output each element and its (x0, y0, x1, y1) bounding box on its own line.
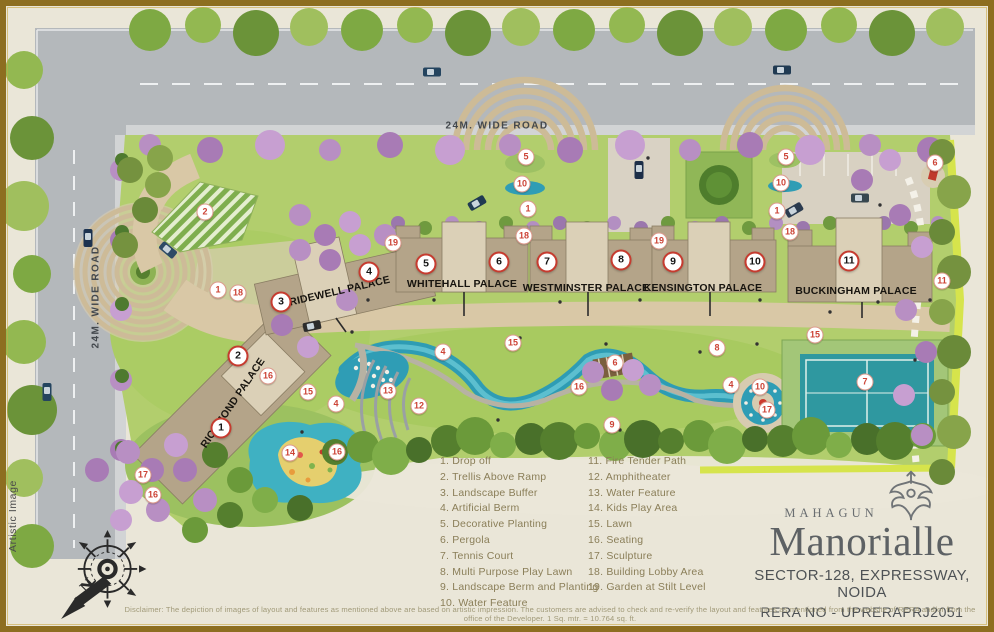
legend-column-2: 11. Fire Tender Path12. Amphitheater13. … (588, 454, 706, 596)
legend-item: 15. Lawn (588, 517, 706, 533)
legend-item: 9. Landscape Berm and Planting (440, 580, 598, 596)
feature-number-badge: 15 (807, 327, 824, 344)
brand-project-name: Manorialle (733, 521, 991, 561)
legend-item: 19. Garden at Stilt Level (588, 580, 706, 596)
tower-number-badge: 5 (416, 254, 437, 275)
feature-number-badge: 14 (282, 445, 299, 462)
tower-number-badge: 3 (271, 292, 292, 313)
tower-number-badge: 1 (211, 418, 232, 439)
tower-number-badge: 11 (839, 251, 860, 272)
feature-number-badge: 15 (505, 335, 522, 352)
brand-crest-icon (883, 470, 939, 522)
legend-column-1: 1. Drop off2. Trellis Above Ramp3. Lands… (440, 454, 598, 612)
tower-number-badge: 6 (489, 252, 510, 273)
tower-number-badge: 8 (611, 250, 632, 271)
legend-item: 8. Multi Purpose Play Lawn (440, 565, 598, 581)
legend-item: 18. Building Lobby Area (588, 565, 706, 581)
feature-number-badge: 16 (329, 444, 346, 461)
feature-number-badge: 1 (210, 282, 227, 299)
feature-number-badge: 5 (778, 149, 795, 166)
legend-item: 17. Sculpture (588, 549, 706, 565)
feature-number-badge: 4 (328, 396, 345, 413)
feature-number-badge: 16 (145, 487, 162, 504)
feature-number-badge: 16 (260, 368, 277, 385)
feature-number-badge: 5 (518, 149, 535, 166)
building-label-westminster: WESTMINSTER PALACE (523, 282, 650, 294)
feature-number-badge: 16 (571, 379, 588, 396)
feature-number-badge: 18 (516, 228, 533, 245)
feature-number-badge: 18 (782, 224, 799, 241)
legend-item: 6. Pergola (440, 533, 598, 549)
feature-number-badge: 19 (651, 233, 668, 250)
legend-item: 7. Tennis Court (440, 549, 598, 565)
tower-number-badge: 9 (663, 252, 684, 273)
legend-item: 16. Seating (588, 533, 706, 549)
brand-block: MAHAGUN Manorialle SECTOR-128, EXPRESSWA… (733, 480, 991, 620)
legend-item: 1. Drop off (440, 454, 598, 470)
feature-number-badge: 17 (759, 402, 776, 419)
artistic-image-note: Artistic Image (7, 480, 19, 552)
brand-location: SECTOR-128, EXPRESSWAY, NOIDA (733, 567, 991, 601)
legend-item: 5. Decorative Planting (440, 517, 598, 533)
legend-item: 4. Artificial Berm (440, 501, 598, 517)
feature-number-badge: 11 (934, 273, 951, 290)
feature-number-badge: 8 (709, 340, 726, 357)
feature-number-badge: 15 (300, 384, 317, 401)
legend-item: 13. Water Feature (588, 486, 706, 502)
legend-item: 14. Kids Play Area (588, 501, 706, 517)
feature-number-badge: 10 (514, 176, 531, 193)
legend-item: 11. Fire Tender Path (588, 454, 706, 470)
left-road-label: 24M. WIDE ROAD (91, 246, 102, 349)
legend-item: 3. Landscape Buffer (440, 486, 598, 502)
legend-item: 12. Amphitheater (588, 470, 706, 486)
feature-number-badge: 10 (752, 379, 769, 396)
feature-number-badge: 1 (769, 203, 786, 220)
feature-number-badge: 10 (773, 175, 790, 192)
legend-item: 2. Trellis Above Ramp (440, 470, 598, 486)
tower-number-badge: 2 (228, 346, 249, 367)
feature-number-badge: 6 (927, 155, 944, 172)
feature-number-badge: 4 (723, 377, 740, 394)
feature-number-badge: 9 (604, 417, 621, 434)
feature-number-badge: 7 (857, 374, 874, 391)
disclaimer-text: Disclaimer: The depiction of images of l… (120, 605, 980, 623)
tower-number-badge: 4 (359, 262, 380, 283)
feature-number-badge: 2 (197, 204, 214, 221)
feature-number-badge: 6 (607, 355, 624, 372)
feature-number-badge: 18 (230, 285, 247, 302)
feature-number-badge: 1 (520, 201, 537, 218)
feature-number-badge: 12 (411, 398, 428, 415)
building-label-buckingham: BUCKINGHAM PALACE (795, 285, 917, 297)
feature-number-badge: 13 (380, 383, 397, 400)
building-label-kensington: KENSINGTON PALACE (644, 282, 763, 294)
building-label-whitehall: WHITEHALL PALACE (407, 278, 517, 290)
site-plan-page: 24M. WIDE ROAD 24M. WIDE ROAD RICHMOND P… (0, 0, 994, 632)
top-road-label: 24M. WIDE ROAD (446, 121, 549, 132)
feature-number-badge: 17 (135, 467, 152, 484)
tower-number-badge: 10 (745, 252, 766, 273)
tower-number-badge: 7 (537, 252, 558, 273)
feature-number-badge: 4 (435, 344, 452, 361)
feature-number-badge: 19 (385, 235, 402, 252)
